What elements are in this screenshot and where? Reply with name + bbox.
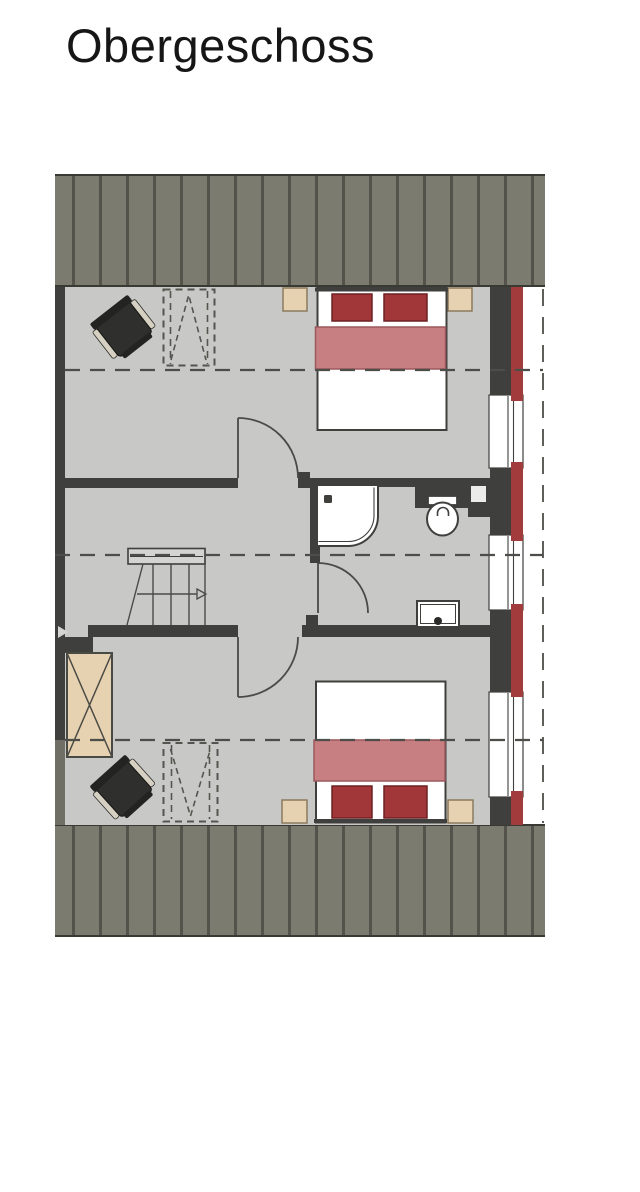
floor-plan-drawing — [0, 0, 640, 1192]
staircase — [127, 549, 206, 626]
blanket — [316, 327, 446, 369]
skylight-opening-mark — [171, 295, 206, 360]
window-bottom-bedroom — [489, 692, 523, 797]
pillow — [384, 786, 427, 818]
wall-junction-block — [55, 637, 93, 653]
shower — [317, 485, 378, 546]
facade-cladding-2 — [511, 462, 523, 541]
pillow — [332, 786, 372, 818]
chair-seat — [95, 300, 153, 357]
nightstand — [448, 288, 472, 311]
right-wall-segment-2 — [490, 468, 511, 535]
nightstand — [283, 288, 307, 311]
facade-cladding-3 — [511, 604, 523, 697]
toilet-niche-step — [468, 508, 490, 517]
right-wall-segment-1 — [490, 287, 511, 395]
door-top-bedroom — [238, 418, 298, 478]
chair — [87, 293, 160, 365]
chair — [87, 752, 160, 825]
window-top-bedroom — [489, 395, 523, 468]
facade-cladding-4 — [511, 791, 523, 825]
skylight-bottom — [164, 743, 218, 822]
wall-bottom-bedroom-right — [302, 625, 492, 637]
window-bathroom — [489, 535, 523, 610]
chair-seat — [95, 760, 153, 818]
wardrobe — [67, 653, 112, 757]
pillow — [332, 294, 372, 321]
left-wall — [55, 287, 65, 740]
toilet-niche-hollow — [471, 486, 486, 502]
pillow — [384, 294, 427, 321]
doors — [238, 418, 368, 697]
toilet — [427, 496, 458, 536]
left-wall-under-roof — [55, 740, 65, 825]
blanket — [314, 740, 445, 781]
sink — [417, 601, 459, 627]
door-bathroom — [318, 563, 368, 613]
nightstand — [282, 800, 307, 823]
right-wall-segment-3 — [490, 610, 511, 692]
bedroom-top-furniture — [283, 288, 472, 430]
door-swing-arc — [318, 563, 368, 613]
door-bottom-bedroom — [238, 637, 298, 697]
shower-drain — [324, 495, 332, 503]
bathroom-door-stub — [306, 615, 318, 625]
floor-plan-page: Obergeschoss — [0, 0, 640, 1192]
door-swing-arc — [238, 418, 298, 478]
nightstand — [448, 800, 473, 823]
skylight-top — [164, 290, 215, 366]
skylight-opening-mark — [171, 749, 211, 816]
right-wall-segment-4 — [490, 797, 511, 825]
wall-bottom-bedroom-left — [88, 625, 238, 637]
sink-faucet — [434, 617, 442, 625]
wall-top-bedroom-stub — [298, 472, 310, 488]
wall-top-bedroom-left — [65, 478, 238, 488]
facade-cladding-1 — [511, 287, 523, 401]
door-swing-arc — [238, 637, 298, 697]
